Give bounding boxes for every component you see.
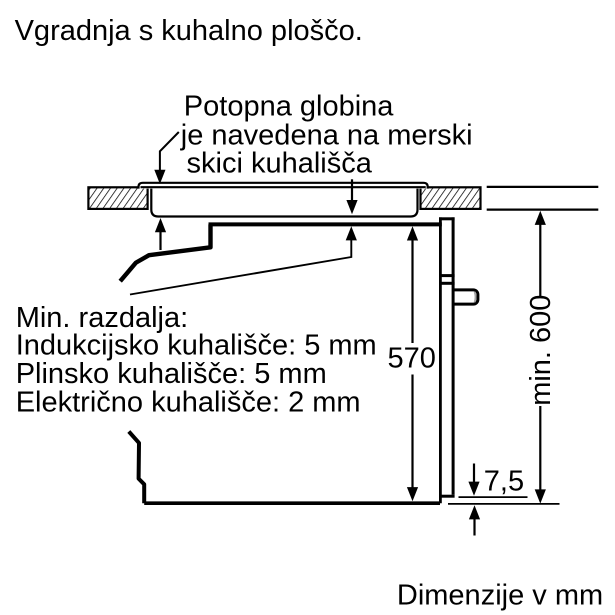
svg-text:Električno kuhališče: 2 mm: Električno kuhališče: 2 mm: [16, 386, 361, 418]
svg-text:Potopna globina: Potopna globina: [184, 91, 394, 123]
svg-text:skici kuhališča: skici kuhališča: [187, 148, 373, 180]
svg-text:570: 570: [388, 343, 436, 375]
svg-text:min. 600: min. 600: [525, 295, 557, 406]
svg-text:Indukcijsko kuhališče: 5 mm: Indukcijsko kuhališče: 5 mm: [16, 330, 377, 362]
svg-text:Dimenzije v mm: Dimenzije v mm: [397, 579, 603, 611]
svg-text:Plinsko kuhališče: 5 mm: Plinsko kuhališče: 5 mm: [16, 358, 327, 390]
svg-text:Vgradnja s kuhalno ploščo.: Vgradnja s kuhalno ploščo.: [15, 15, 363, 47]
svg-text:je navedena na merski: je navedena na merski: [180, 120, 473, 152]
svg-text:7,5: 7,5: [484, 465, 524, 497]
